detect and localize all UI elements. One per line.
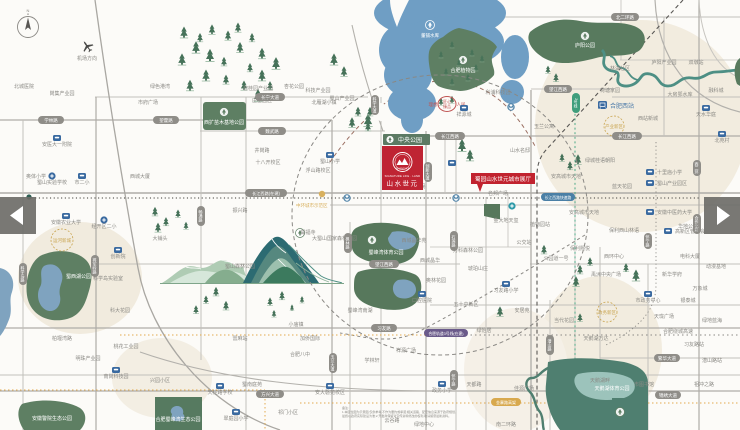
svg-text:安徽警院生态公园: 安徽警院生态公园 — [32, 415, 72, 422]
svg-text:北城医院: 北城医院 — [14, 83, 34, 90]
svg-text:庐阳公园: 庐阳公园 — [575, 42, 595, 49]
svg-text:望霍路: 望霍路 — [159, 117, 173, 124]
svg-text:学林轩: 学林轩 — [364, 357, 379, 364]
svg-text:安居苑: 安居苑 — [514, 307, 529, 314]
svg-text:玉兰大道: 玉兰大道 — [331, 355, 336, 372]
svg-text:明珠产业园: 明珠产业园 — [75, 355, 100, 362]
svg-text:合肥蜀峰湾生态公园: 合肥蜀峰湾生态公园 — [155, 416, 200, 423]
svg-text:安徽中医药大学: 安徽中医药大学 — [657, 209, 692, 216]
svg-text:方兴大道: 方兴大道 — [261, 391, 279, 398]
svg-text:蜀园山水世元城市展厅: 蜀园山水世元城市展厅 — [475, 175, 531, 183]
svg-text:天鹅湖万达: 天鹅湖万达 — [583, 335, 608, 342]
svg-text:机场方向: 机场方向 — [77, 55, 97, 62]
svg-text:杏花公园: 杏花公园 — [284, 83, 304, 90]
svg-text:魏武路: 魏武路 — [265, 128, 279, 135]
svg-text:浮山路校区: 浮山路校区 — [305, 167, 330, 174]
svg-text:蓝天花园: 蓝天花园 — [612, 183, 632, 190]
svg-text:翠庭园小学: 翠庭园小学 — [223, 415, 248, 422]
svg-text:繁华大道: 繁华大道 — [658, 355, 676, 362]
svg-text:庐阳产业园: 庐阳产业园 — [651, 59, 676, 66]
svg-text:SHANSHUI: SHANSHUI — [396, 167, 410, 171]
svg-text:西站新城: 西站新城 — [638, 115, 658, 122]
svg-text:创新大道: 创新大道 — [426, 163, 431, 181]
svg-text:合肥植物园: 合肥植物园 — [450, 67, 475, 74]
svg-text:中央公园: 中央公园 — [398, 136, 422, 144]
svg-text:长江西路(在建): 长江西路(在建) — [252, 190, 281, 197]
svg-text:理想: 理想 — [429, 101, 438, 107]
svg-text:石莲路: 石莲路 — [452, 235, 457, 248]
svg-text:柏堰湾路: 柏堰湾路 — [52, 335, 72, 342]
svg-text:畅通路: 畅通路 — [199, 209, 204, 223]
svg-text:名邦广场: 名邦广场 — [488, 190, 508, 197]
svg-text:開福寺: 開福寺 — [300, 229, 315, 236]
svg-text:融科城: 融科城 — [708, 87, 723, 94]
svg-text:双墩站: 双墩站 — [688, 59, 703, 66]
svg-text:万科森林公园: 万科森林公园 — [453, 247, 483, 254]
svg-text:植物园站: 植物园站 — [530, 221, 550, 228]
svg-text:安大磬苑校区: 安大磬苑校区 — [315, 389, 345, 396]
svg-text:蜀山实验学校: 蜀山实验学校 — [37, 179, 67, 186]
svg-text:雷麻站: 雷麻站 — [232, 335, 247, 342]
svg-text:长江西路快速路: 长江西路快速路 — [545, 195, 572, 200]
svg-text:奥体小学: 奥体小学 — [26, 173, 46, 180]
svg-text:产业新区: 产业新区 — [605, 123, 623, 130]
svg-text:市二小: 市二小 — [74, 179, 89, 186]
svg-text:科学岛实验室: 科学岛实验室 — [93, 275, 123, 282]
svg-text:十八开校区: 十八开校区 — [255, 159, 280, 166]
svg-text:天柱路学校: 天柱路学校 — [207, 389, 232, 396]
svg-text:山水名邸: 山水名邸 — [510, 147, 530, 154]
svg-text:金大地天玺: 金大地天玺 — [493, 217, 518, 224]
svg-text:华地公馆: 华地公馆 — [678, 223, 698, 230]
svg-text:习友路小学: 习友路小学 — [493, 287, 518, 294]
svg-text:运河新城: 运河新城 — [53, 237, 71, 244]
svg-text:云谷路: 云谷路 — [384, 417, 399, 424]
svg-text:创新院: 创新院 — [110, 253, 125, 260]
svg-text:臻品: 臻品 — [443, 103, 451, 109]
svg-text:合肥八中: 合肥八中 — [290, 351, 310, 358]
svg-text:望江西路: 望江西路 — [549, 86, 567, 93]
svg-text:祥源城: 祥源城 — [456, 111, 471, 118]
svg-text:市图书馆: 市图书馆 — [634, 381, 654, 388]
svg-text:万象城: 万象城 — [692, 285, 707, 292]
svg-text:公园道一号: 公园道一号 — [543, 255, 568, 262]
svg-text:保利西山林语: 保利西山林语 — [609, 227, 639, 234]
svg-text:蜀山产业园: 蜀山产业园 — [329, 95, 354, 102]
svg-text:大铺头: 大铺头 — [152, 235, 167, 242]
svg-text:望江西路: 望江西路 — [375, 261, 393, 268]
svg-text:南二环路: 南二环路 — [496, 421, 516, 428]
svg-text:N: N — [27, 8, 30, 13]
svg-text:2号线: 2号线 — [573, 98, 578, 108]
svg-text:西环中心: 西环中心 — [604, 253, 624, 260]
svg-text:西城大厦: 西城大厦 — [130, 173, 150, 180]
svg-text:SIGNATURE LIFE · LAND: SIGNATURE LIFE · LAND — [385, 174, 421, 178]
svg-text:蜀山产业园区: 蜀山产业园区 — [657, 180, 687, 187]
svg-text:兴园小区: 兴园小区 — [150, 377, 170, 384]
svg-text:小庙镇: 小庙镇 — [288, 321, 303, 328]
svg-text:将军岭路: 将军岭路 — [93, 257, 98, 275]
svg-text:西二环: 西二环 — [695, 162, 700, 175]
svg-text:琥珀山庄: 琥珀山庄 — [468, 265, 488, 272]
svg-text:禹洲中央广场: 禹洲中央广场 — [591, 271, 621, 278]
svg-text:天鹅湖体育公园: 天鹅湖体育公园 — [594, 385, 629, 392]
svg-text:科学大道: 科学大道 — [373, 96, 378, 114]
svg-text:市府广场: 市府广场 — [138, 99, 158, 106]
svg-text:绿地中心: 绿地中心 — [414, 421, 434, 428]
svg-text:绿怡居: 绿怡居 — [476, 327, 491, 334]
svg-text:政务新区: 政务新区 — [598, 309, 616, 316]
svg-text:蜀峰湾体育公园: 蜀峰湾体育公园 — [368, 249, 403, 256]
svg-text:井岗路: 井岗路 — [254, 147, 269, 154]
svg-text:科技产业园: 科技产业园 — [305, 87, 330, 94]
svg-text:玉兰公寓: 玉兰公寓 — [534, 123, 554, 130]
svg-text:振兴路: 振兴路 — [232, 207, 247, 214]
svg-text:北苑村: 北苑村 — [714, 137, 729, 144]
svg-text:蜀峰湾南湖: 蜀峰湾南湖 — [347, 307, 372, 314]
svg-text:政务小学: 政务小学 — [432, 387, 452, 394]
svg-text:利浦科技园: 利浦科技园 — [485, 89, 510, 96]
svg-text:绿地蓝海: 绿地蓝海 — [702, 317, 722, 324]
svg-text:怀宁路: 怀宁路 — [452, 373, 457, 387]
svg-text:电科大厦: 电科大厦 — [680, 253, 700, 260]
svg-text:北二环路: 北二环路 — [616, 14, 634, 21]
svg-text:绿城桂语朝阳: 绿城桂语朝阳 — [585, 157, 615, 164]
svg-text:当代花园: 当代花园 — [554, 317, 574, 324]
svg-text:新华学府: 新华学府 — [662, 271, 682, 278]
svg-text:蜀西湖公园: 蜀西湖公园 — [66, 273, 91, 280]
svg-text:合肥西站: 合肥西站 — [610, 102, 634, 110]
svg-text:西城晶华: 西城晶华 — [420, 257, 440, 264]
svg-text:董铺水库: 董铺水库 — [421, 32, 439, 39]
svg-text:天珑广场: 天珑广场 — [654, 313, 674, 320]
svg-text:合肥轨道3号线(在建): 合肥轨道3号线(在建) — [428, 331, 464, 336]
svg-text:祖冲之路: 祖冲之路 — [694, 381, 714, 388]
svg-text:山水世元: 山水世元 — [387, 179, 419, 188]
svg-text:加侨国际: 加侨国际 — [300, 335, 320, 342]
svg-text:岗集产业园: 岗集产业园 — [49, 90, 74, 97]
svg-text:经开区二小: 经开区二小 — [91, 223, 116, 230]
svg-text:潜山路: 潜山路 — [548, 338, 553, 352]
svg-text:安医大一附院: 安医大一附院 — [42, 141, 72, 148]
svg-text:习友路站: 习友路站 — [684, 341, 704, 348]
svg-text:长江西路: 长江西路 — [618, 133, 636, 140]
svg-text:合肥绕城高速: 合肥绕城高速 — [663, 328, 693, 335]
svg-text:动漫基地: 动漫基地 — [706, 263, 726, 270]
svg-text:天鹅湖畔: 天鹅湖畔 — [590, 377, 610, 384]
svg-text:怀宁路: 怀宁路 — [646, 234, 651, 248]
svg-text:大房郢水库: 大房郢水库 — [667, 91, 692, 98]
svg-text:银泰城: 银泰城 — [680, 297, 695, 304]
svg-text:祥源广场: 祥源广场 — [396, 347, 416, 354]
svg-text:习友路: 习友路 — [377, 325, 391, 332]
svg-text:林湖社区: 林湖社区 — [610, 65, 630, 72]
svg-text:庄墓园区: 庄墓园区 — [252, 97, 272, 104]
svg-text:十里庙小学: 十里庙小学 — [657, 169, 682, 176]
svg-text:蜀南庭苑: 蜀南庭苑 — [242, 381, 262, 388]
svg-text:枫林路: 枫林路 — [346, 236, 351, 250]
svg-text:长江西路: 长江西路 — [441, 133, 459, 140]
svg-text:西扩苗木基地公园: 西扩苗木基地公园 — [204, 119, 244, 126]
svg-text:天水华庭: 天水华庭 — [696, 111, 716, 118]
svg-text:奥林花园: 奥林花园 — [426, 277, 446, 284]
svg-text:安高城市天地: 安高城市天地 — [551, 173, 581, 180]
svg-text:天都路: 天都路 — [466, 381, 481, 388]
svg-text:最终以政府实际建设为准;2.开发商保留对宣传资料修改的权利,: 最终以政府实际建设为准;2.开发商保留对宣传资料修改的权利,敬请留意最新资料。 — [342, 413, 451, 418]
svg-text:五十中新区: 五十中新区 — [453, 301, 478, 308]
svg-text:南岗科技园: 南岗科技园 — [103, 373, 128, 380]
svg-text:科大花园: 科大花园 — [110, 307, 130, 314]
svg-text:金寨路高架: 金寨路高架 — [496, 399, 516, 405]
svg-text:公交站: 公交站 — [516, 239, 531, 246]
svg-text:保利熙悦: 保利熙悦 — [570, 245, 590, 252]
svg-text:口腔医院: 口腔医院 — [412, 297, 432, 304]
svg-text:锦绣大道: 锦绣大道 — [659, 392, 677, 399]
svg-text:科学岛路: 科学岛路 — [21, 265, 26, 283]
svg-text:安高城市天地: 安高城市天地 — [569, 209, 599, 216]
svg-text:市政务中心: 市政务中心 — [635, 297, 660, 304]
svg-text:绿色港湾: 绿色港湾 — [150, 83, 170, 90]
svg-text:西城晶华苑: 西城晶华苑 — [401, 237, 426, 244]
svg-text:桃花工业园: 桃花工业园 — [113, 343, 138, 350]
svg-text:祁门小区: 祁门小区 — [278, 409, 298, 416]
svg-text:荷塘家园: 荷塘家园 — [600, 87, 620, 94]
svg-text:佳源广场: 佳源广场 — [514, 385, 534, 392]
svg-text:蜀山小学: 蜀山小学 — [320, 158, 340, 165]
svg-text:蜀山森林公园: 蜀山森林公园 — [225, 263, 255, 270]
svg-text:潜山路站: 潜山路站 — [702, 357, 722, 364]
svg-text:学林路: 学林路 — [44, 117, 58, 124]
svg-text:碧桂园产业园: 碧桂园产业园 — [243, 85, 273, 92]
svg-text:安徽农业大学: 安徽农业大学 — [51, 219, 81, 226]
svg-text:中环城市示范区: 中环城市示范区 — [296, 202, 328, 209]
